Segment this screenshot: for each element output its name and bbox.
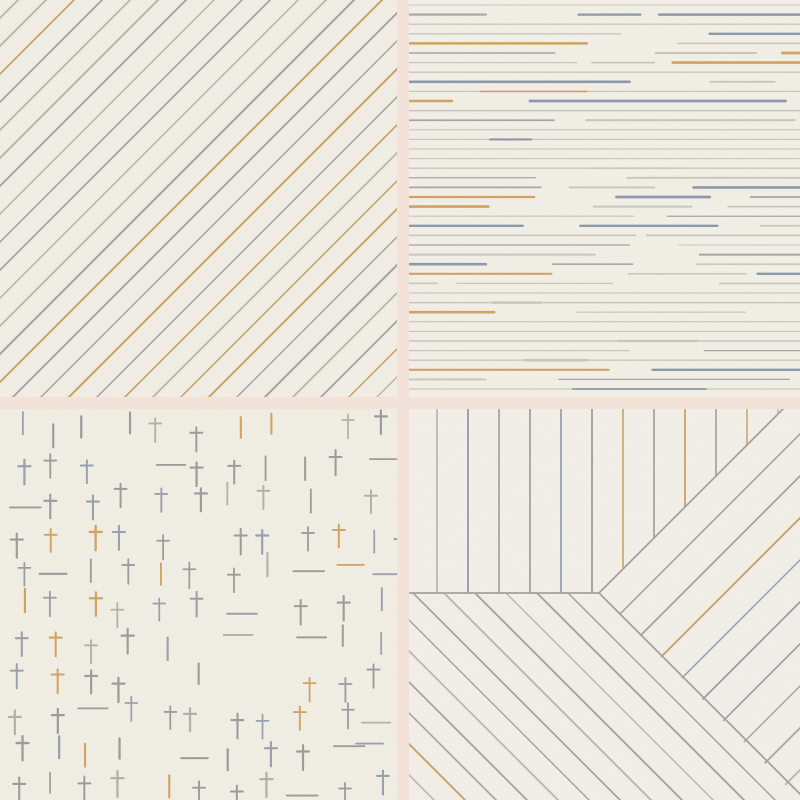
pattern-grid [0,0,800,800]
cross-scatter-pattern [0,409,397,800]
panel-cross-scatter [0,409,397,800]
panel-pinwheel-stripes [409,409,800,800]
panel-diagonal-stripes [0,0,397,397]
pinwheel-stripes-pattern [409,409,800,800]
panel-dashed-lines [409,0,800,397]
dashed-rows-pattern [409,0,800,397]
diagonal-stripes-pattern [0,0,397,397]
